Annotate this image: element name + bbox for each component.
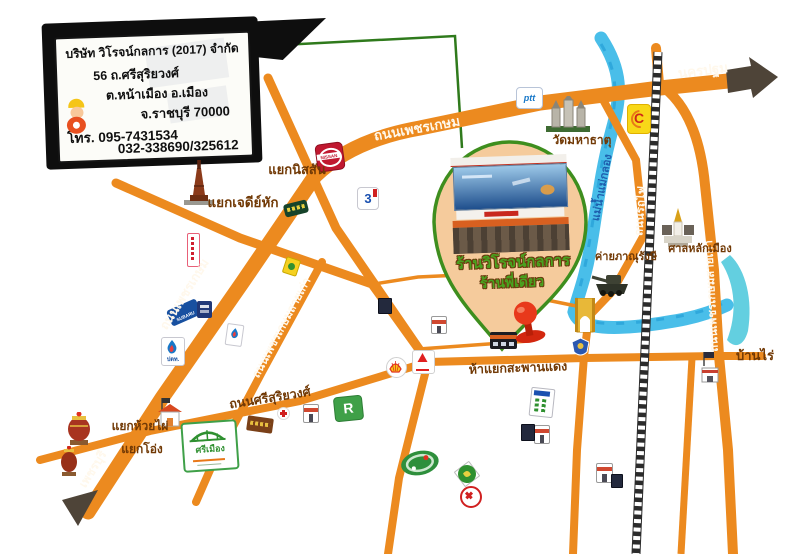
place-label-army-camp: ค่ายภาณุรังษี bbox=[586, 252, 666, 264]
channel3-sign: 3 bbox=[357, 187, 379, 210]
dark-sign bbox=[611, 474, 623, 488]
red-x-badge bbox=[460, 486, 482, 508]
ptt-station-sign-small bbox=[225, 323, 245, 347]
ptt-sign-text: ปตท. bbox=[162, 356, 184, 364]
ptt-top-sign-text: ptt bbox=[524, 93, 536, 103]
jar-monument-icon bbox=[64, 412, 94, 446]
ptt-station-sign: ปตท. bbox=[161, 337, 185, 366]
shop-icon bbox=[431, 316, 447, 334]
dark-sign bbox=[378, 298, 392, 314]
shell-sign bbox=[386, 357, 407, 378]
shop-icon bbox=[303, 404, 319, 423]
pushpin-icon bbox=[501, 296, 554, 347]
srimueang-sign-text: ศรีเมือง bbox=[184, 440, 237, 458]
store-name-line2: ร้านพี่เดียว bbox=[452, 270, 573, 296]
road-south-east bbox=[681, 358, 692, 554]
red-cross-icon bbox=[277, 407, 290, 420]
srimueang-sign: ศรีเมือง bbox=[180, 419, 239, 473]
place-label-city-pillar: ศาลหลักเมือง bbox=[660, 244, 740, 256]
mini-mart-sign bbox=[529, 387, 556, 418]
business-card: บริษัท วิโรจน์กลการ (2017) จำกัด 56 ถ.ศร… bbox=[54, 31, 254, 164]
company-phone2: 032-338690/325612 bbox=[118, 137, 239, 156]
channel3-sign-text: 3 bbox=[364, 191, 371, 206]
c-mart-sign: C bbox=[627, 104, 651, 134]
junction-label-ong: แยกโอ่ง bbox=[112, 443, 172, 456]
city-pillar-shrine-icon bbox=[660, 208, 696, 248]
wat-mahathat-icon bbox=[544, 96, 592, 134]
dark-sign bbox=[521, 424, 535, 441]
green-badge-sign bbox=[452, 459, 481, 488]
store-photo bbox=[450, 154, 569, 254]
army-tank-icon bbox=[590, 270, 634, 298]
police-badge-icon bbox=[572, 338, 589, 358]
robinson-sign: R bbox=[333, 395, 364, 423]
mitsubishi-sign bbox=[412, 350, 435, 374]
junction-label-jedi-hak: แยกเจดีย์หัก bbox=[188, 196, 298, 210]
map-canvas: บริษัท วิโรจน์กลการ (2017) จำกัด 56 ถ.ศร… bbox=[0, 0, 800, 554]
mascot-worker-icon bbox=[62, 96, 94, 143]
ptt-top-sign: ptt bbox=[516, 87, 543, 109]
blue-sign bbox=[197, 301, 212, 318]
junction-label-ban-rai: บ้านไร่ bbox=[736, 349, 796, 363]
bridge-icon bbox=[574, 298, 596, 334]
company-address3: จ.ราชบุรี 70000 bbox=[140, 100, 230, 124]
junction-label-nissan: แยกนิสสัน bbox=[252, 163, 342, 177]
robinson-sign-text: R bbox=[343, 400, 355, 417]
shop-icon bbox=[534, 425, 550, 444]
junction-label-huai-phai: แยกห้วยไผ่ bbox=[100, 420, 180, 433]
jar-monument-icon bbox=[58, 446, 80, 478]
